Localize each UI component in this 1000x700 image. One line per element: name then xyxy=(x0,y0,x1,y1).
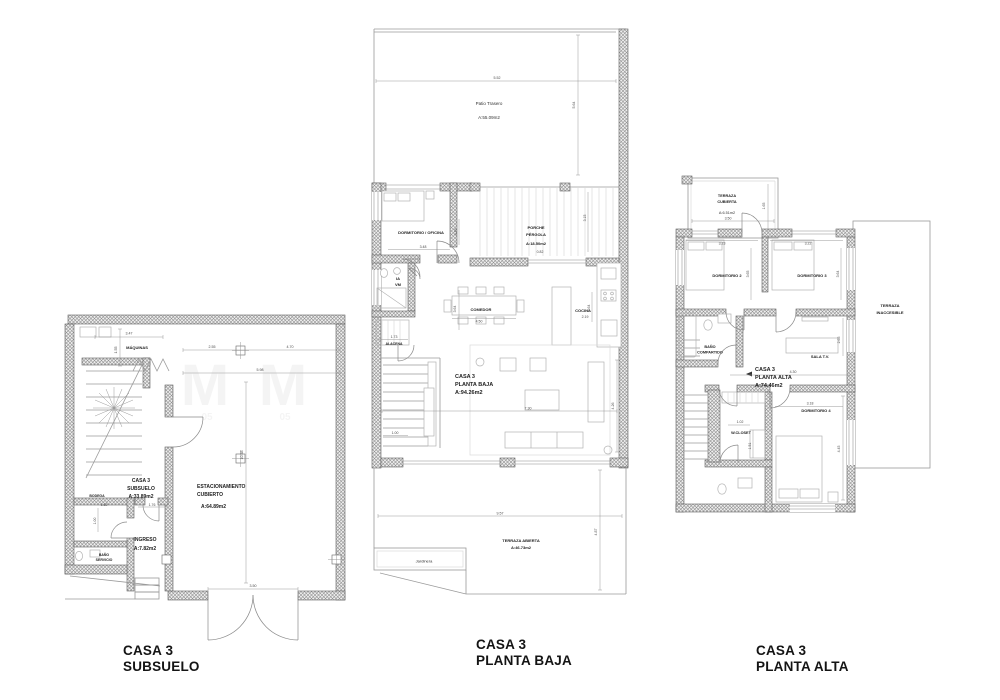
dim-cocina-h: 3.64 xyxy=(587,305,591,312)
sala-tv-furniture xyxy=(786,317,838,353)
title-planta-alta: CASA 3 PLANTA ALTA xyxy=(756,643,849,675)
dim-maquinas-h: 1.55 xyxy=(114,347,118,354)
dim-dorm3-w: 3.22 xyxy=(805,242,812,246)
dim-closet-w: 1.02 xyxy=(737,420,744,424)
label-bano-compartido-2: COMPARTIDO xyxy=(697,351,723,355)
svg-text:M: M xyxy=(259,353,307,418)
dim-terraza-w: 9.57 xyxy=(497,512,504,516)
dim-dorm2-h: 3.65 xyxy=(746,271,750,278)
dim-patio-w: 5.52 xyxy=(494,76,501,80)
dim-cocina-w: 2.19 xyxy=(582,315,589,319)
dim-garaje-h: 10.58 xyxy=(240,451,244,460)
subsuelo-doors xyxy=(111,417,298,640)
plant-symbol xyxy=(93,387,135,429)
label-terraza-cub-area: A:6.51m2 xyxy=(719,211,735,215)
label-terraza-cub-2: CUBIERTA xyxy=(717,200,737,204)
title-planta-alta-line1: CASA 3 xyxy=(756,643,849,659)
label-medio-bano-1: IA xyxy=(396,276,400,281)
watermark: M M 05 05 xyxy=(181,353,307,423)
dim-dorm-w: 3.48 xyxy=(420,245,427,249)
label-casa-alta-2: PLANTA ALTA xyxy=(755,375,792,381)
entry-steps xyxy=(65,576,160,599)
label-casa-alta-area: A:74.46m2 xyxy=(755,383,783,389)
dim-col1: 2.55 xyxy=(209,345,216,349)
title-subsuelo: CASA 3 SUBSUELO xyxy=(123,643,200,675)
label-ingreso-area: A:7.82m2 xyxy=(134,546,156,552)
dim-comedor-h: 3.64 xyxy=(453,306,457,313)
title-planta-baja: CASA 3 PLANTA BAJA xyxy=(476,637,572,669)
dim-comedor-w: 4.50 xyxy=(476,320,483,324)
dim-escalera: 1.00 xyxy=(392,431,399,435)
label-casa-alta-1: CASA 3 xyxy=(755,367,775,373)
dim-terraza-cub-h: 1.65 xyxy=(762,203,766,210)
dim-col2: 4.70 xyxy=(287,345,294,349)
dim-sala-h: 2.65 xyxy=(837,337,841,344)
dim-terraza-cub-w: 3.50 xyxy=(725,217,732,221)
svg-text:M: M xyxy=(181,353,229,418)
label-porche-1: PORCHE xyxy=(527,225,544,230)
floor-plan-drawing: M M 05 05 xyxy=(0,0,1000,700)
reference-arrow xyxy=(746,372,752,377)
bed-dormitorio3 xyxy=(772,240,814,290)
dim-sala-w: 7.30 xyxy=(525,407,532,411)
terraza-inaccesible-outline xyxy=(853,221,930,468)
dim-patio-h: 5.64 xyxy=(572,102,576,109)
label-casa-baja-area: A:94.26m2 xyxy=(455,390,483,396)
bed-dormitorio2 xyxy=(686,240,724,290)
title-subsuelo-line1: CASA 3 xyxy=(123,643,200,659)
title-planta-baja-line2: PLANTA BAJA xyxy=(476,653,572,669)
dim-ingreso-w: 1.76 xyxy=(149,503,156,507)
patio-boundary xyxy=(374,29,626,184)
dim-sala-h: 4.26 xyxy=(611,403,615,410)
dim-alacena: 1.73 xyxy=(391,335,398,339)
dim-maquinas-w: 3.47 xyxy=(126,332,133,336)
terraza-abierta xyxy=(374,468,626,594)
dim-bodega-w: 1.62 xyxy=(101,503,108,507)
bed-dormitorio-oficina xyxy=(382,191,434,221)
label-bano-servicio-2: SERVICIO xyxy=(96,558,113,562)
dim-terraza-h: 4.87 xyxy=(594,529,598,536)
dim-garaje-w: 5.98 xyxy=(257,368,264,372)
label-bano-compartido-1: BAÑO xyxy=(704,344,715,349)
label-bodega: BODEGA xyxy=(89,494,105,498)
label-jardinera: Jardinera xyxy=(416,559,433,564)
label-dormitorio2: DORMITORIO 2 xyxy=(712,273,742,278)
planta-alta-stairs xyxy=(684,340,708,459)
label-estacionamiento-2: CUBIERTO xyxy=(197,492,223,498)
label-wcloset: W.CLOSET xyxy=(731,431,752,435)
label-maquinas: MÁQUINAS xyxy=(126,345,148,350)
label-terraza-area: A:46.73m2 xyxy=(511,545,532,550)
label-terraza: TERRAZA ABIERTA xyxy=(502,538,540,543)
label-bano-servicio-1: BAÑO xyxy=(99,552,110,557)
dim-dorm-h: 3.29 xyxy=(454,229,458,236)
dim-pasillo: 4.30 xyxy=(790,370,797,374)
title-planta-baja-line1: CASA 3 xyxy=(476,637,572,653)
label-dormitorio-oficina: DORMITORIO / OFICINA xyxy=(398,230,444,235)
label-porche-area: A:18.50m2 xyxy=(526,241,547,246)
dim-dorm2-w: 3.23 xyxy=(719,242,726,246)
label-sala-tv: SALA T.V. xyxy=(811,354,829,359)
label-casa-sub-1: CASA 3 xyxy=(132,478,150,484)
dim-dorm4-w: 3.18 xyxy=(807,402,814,406)
title-planta-alta-line2: PLANTA ALTA xyxy=(756,659,849,675)
label-casa-baja-1: CASA 3 xyxy=(455,374,475,380)
dim-closet-h: 1.51 xyxy=(748,443,752,450)
label-dormitorio3: DORMITORIO 3 xyxy=(797,273,827,278)
dim-bodega-h: 1.00 xyxy=(93,518,97,525)
label-ingreso: INGRESO xyxy=(133,537,156,543)
label-comedor: COMEDOR xyxy=(471,307,492,312)
label-estacionamiento-area: A:64.89m2 xyxy=(201,504,226,510)
planta-baja-plan: 5.52 Patio Trasero A:55.09m2 5.64 DORMIT… xyxy=(372,29,628,594)
dim-porton: 3.50 xyxy=(250,584,257,588)
label-terraza-inac-2: INACCESIBLE xyxy=(876,310,903,315)
label-terraza-inac-1: TERRAZA xyxy=(880,303,899,308)
title-subsuelo-line2: SUBSUELO xyxy=(123,659,200,675)
label-casa-baja-2: PLANTA BAJA xyxy=(455,382,493,388)
machine-equipment xyxy=(80,327,111,337)
label-dormitorio4: DORMITORIO 4 xyxy=(801,408,831,413)
label-terraza-cub-1: TERRAZA xyxy=(718,194,736,198)
half-bath-fixtures xyxy=(377,268,406,308)
label-casa-sub-2: SUBSUELO xyxy=(127,486,155,492)
label-estacionamiento-1: ESTACIONAMIENTO xyxy=(197,484,246,490)
planta-baja-windows xyxy=(372,185,610,464)
floor-plan-sheet: M M 05 05 xyxy=(0,0,1000,700)
planta-alta-plan: TERRAZA CUBIERTA A:6.51m2 3.50 1.65 3.23… xyxy=(676,176,930,512)
dim-dorm4-h: 4.45 xyxy=(837,446,841,453)
bed-dormitorio4 xyxy=(776,436,838,502)
dim-dorm3-h: 3.64 xyxy=(836,271,840,278)
lower-bath-fixtures xyxy=(718,478,752,494)
subsuelo-plan: M M 05 05 xyxy=(65,315,345,640)
label-alacena: ALACENA xyxy=(385,342,403,346)
dim-paso: 0.82 xyxy=(537,250,544,254)
label-casa-sub-area: A:33.89m2 xyxy=(128,494,153,500)
svg-text:05: 05 xyxy=(279,412,291,423)
living-room-furniture xyxy=(424,345,612,455)
label-medio-bano-2: VM xyxy=(395,282,402,287)
label-porche-2: PÉRGOLA xyxy=(526,232,546,237)
label-patio-area: A:55.09m2 xyxy=(478,115,500,120)
dim-porche-h: 3.15 xyxy=(583,215,587,222)
label-patio: Patio Trasero xyxy=(476,101,503,106)
